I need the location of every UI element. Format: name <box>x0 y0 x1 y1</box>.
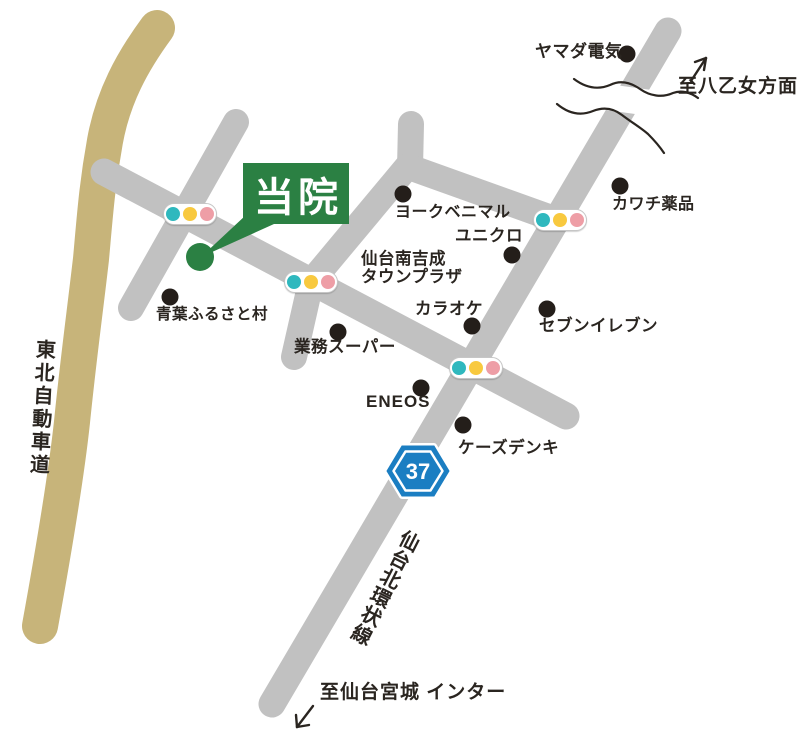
green-light-dot <box>536 213 550 227</box>
south-direction-arrow-icon <box>296 706 313 727</box>
direction-label-north: 至八乙女方面 <box>678 77 798 98</box>
landmark-label-karaoke: カラオケ <box>415 300 483 318</box>
clinic-callout-bubble: 当院 <box>243 163 349 224</box>
landmark-label-ks-denki: ケーズデンキ <box>458 439 559 457</box>
ks-denki-dot <box>455 417 472 434</box>
map-artwork <box>0 0 800 753</box>
red-light-dot <box>321 275 335 289</box>
route-badge-number: 37 <box>399 459 437 485</box>
traffic-signal-townplaza-west <box>284 271 338 293</box>
aoba-furusato-mura-dot <box>162 289 179 306</box>
town-plaza-line1: 仙台南吉成 <box>361 250 463 268</box>
landmark-label-seven-eleven: セブンイレブン <box>539 317 658 335</box>
uniqlo-dot <box>504 247 521 264</box>
landmark-label-kawachi-yakuhin: カワチ薬品 <box>612 196 695 214</box>
green-light-dot <box>287 275 301 289</box>
clinic-location-dot <box>186 243 214 271</box>
landmark-label-york-benimaru: ヨークベニマル <box>395 204 511 222</box>
landmark-label-uniqlo: ユニクロ <box>455 227 523 245</box>
direction-label-south: 至仙台宮城 インター <box>320 683 506 704</box>
clinic-label: 当院 <box>254 165 342 223</box>
green-light-dot <box>452 361 466 375</box>
green-light-dot <box>166 207 180 221</box>
red-light-dot <box>570 213 584 227</box>
yellow-light-dot <box>183 207 197 221</box>
traffic-signal-eneos <box>449 357 503 379</box>
traffic-signal-near-clinic <box>163 203 217 225</box>
red-light-dot <box>200 207 214 221</box>
seven-eleven-dot <box>539 301 556 318</box>
kawachi-yakuhin-dot <box>612 178 629 195</box>
landmark-label-town-plaza: 仙台南吉成 タウンプラザ <box>361 250 463 286</box>
york-benimaru-dot <box>395 186 412 203</box>
landmark-label-gyomu-super: 業務スーパー <box>294 338 396 356</box>
traffic-signal-kawachi <box>533 209 587 231</box>
tohoku-expressway-road <box>40 28 157 626</box>
town-plaza-line2: タウンプラザ <box>361 268 463 286</box>
landmark-label-aoba-furusato-mura: 青葉ふるさと村 <box>156 306 268 323</box>
yellow-light-dot <box>469 361 483 375</box>
landmark-label-eneos: ENEOS <box>366 393 431 412</box>
karaoke-dot <box>464 318 481 335</box>
yellow-light-dot <box>304 275 318 289</box>
yellow-light-dot <box>553 213 567 227</box>
landmark-label-yamada-denki: ヤマダ電気 <box>535 43 623 62</box>
red-light-dot <box>486 361 500 375</box>
clinic-access-map: 37 当院 ヤマダ電気 カワチ薬品 ヨークベニマル ユニクロ 仙台南吉成 タウン… <box>0 0 800 753</box>
